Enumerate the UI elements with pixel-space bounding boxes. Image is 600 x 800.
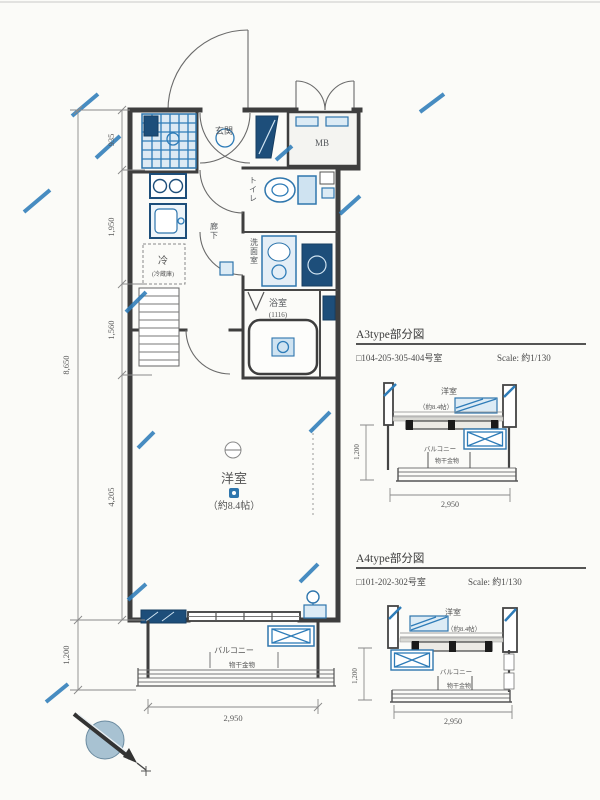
a3-drawing: 洋室 （約8.4帖） バルコニー 物干金物 [353, 383, 518, 509]
north-arrow-compass-icon [74, 714, 151, 776]
mb-vent-icon [326, 117, 348, 126]
a4-dim-depth: 1,200 [351, 668, 359, 684]
a3-title: A3type部分図 [356, 327, 424, 341]
washroom-label: 洗面室 [250, 237, 259, 265]
entrance-area: 玄関 [200, 113, 278, 163]
detail-a3: A3type部分図 □104-205-305-404号室 Scale: 約1/1… [353, 327, 586, 509]
toilet-label: トイレ [249, 176, 258, 203]
a3-balcony-label: バルコニー [424, 445, 456, 453]
a4-dim-width: 2,950 [444, 717, 462, 726]
bathtub-icon [249, 320, 317, 374]
main-room-size: （約8.4帖） [208, 499, 261, 512]
mb-label: MB [315, 138, 329, 148]
dim-seg3: 1,560 [106, 320, 116, 339]
dim-seg1: 935 [106, 134, 116, 147]
floorplan-page: MB 玄関 [0, 0, 600, 800]
mb-vent-icon [296, 117, 318, 126]
refrigerator-space: 冷 (冷蔵庫) [143, 244, 185, 284]
a3-railing-icon [396, 452, 518, 481]
bottom-window-icon [188, 612, 300, 621]
outdoor-faucet-icon [304, 591, 326, 618]
balcony: バルコニー 物干金物 [136, 622, 336, 686]
a3-room-label: 洋室 [441, 386, 457, 396]
bathroom-label: 浴室 [269, 297, 287, 308]
mb-double-door-icon [296, 81, 354, 110]
a4-scale: Scale: 約1/130 [468, 576, 522, 587]
wall-break-marks [24, 94, 444, 702]
storage-shelf-icon [139, 288, 179, 366]
a3-units: □104-205-305-404号室 [356, 352, 442, 363]
a3-scale: Scale: 約1/130 [497, 352, 551, 363]
a4-units: □101-202-302号室 [356, 576, 426, 587]
a4-ac-unit-box-icon [391, 650, 433, 670]
bathroom: 浴室 (1116) [248, 292, 335, 374]
a4-balcony-label: バルコニー [440, 668, 472, 676]
entrance-door-swing-icon [168, 30, 248, 110]
balcony-label: バルコニー [214, 646, 254, 655]
washroom: 洗面室 [250, 236, 333, 286]
ac-unit-box-icon [268, 626, 314, 646]
toilet-tank-icon [298, 176, 316, 204]
balcony-railing-icon [136, 652, 336, 686]
dim-seg4: 4,205 [106, 487, 116, 506]
a3-ac-unit-box-icon [464, 429, 506, 449]
a3-dim-width: 2,950 [441, 500, 459, 509]
dim-total: 8,650 [61, 355, 71, 374]
stove-icon [150, 174, 186, 198]
floor-hatch-icon [220, 262, 233, 275]
dim-seg2: 1,950 [106, 217, 116, 236]
fridge-note: (冷蔵庫) [152, 270, 174, 278]
pipe-space-icon [322, 188, 334, 198]
hallway-label: 廊下 [210, 221, 219, 240]
meter-box: MB [288, 112, 358, 166]
pipe-space-icon [320, 172, 334, 184]
detail-a4: A4type部分図 □101-202-302号室 Scale: 約1/130 洋… [351, 551, 586, 726]
main-room-label: 洋室 [221, 471, 247, 486]
dim-width: 2,950 [223, 713, 242, 723]
main-floor-plan: MB 玄関 [24, 30, 444, 776]
a3-dim-depth: 1,200 [353, 444, 361, 460]
a4-room-size: （約8.4帖） [447, 624, 481, 633]
washer-space-icon [302, 244, 332, 286]
toilet-bowl-icon [265, 178, 295, 202]
a3-balcony-note: 物干金物 [435, 457, 459, 465]
kitchen-unit-icon [142, 114, 196, 168]
folding-door-icon [248, 292, 264, 310]
toilet-room: トイレ [249, 172, 335, 204]
fridge-label: 冷 [158, 254, 168, 267]
a3-room-size: （約8.4帖） [419, 402, 453, 411]
room-door-swing-icon [186, 330, 230, 374]
ceiling-light-icon [225, 442, 241, 458]
kitchen-sink-icon [150, 204, 186, 238]
dim-balcony-depth: 1,200 [61, 645, 71, 664]
a4-title: A4type部分図 [356, 551, 424, 565]
water-heater-icon [323, 296, 335, 320]
a4-balcony-note: 物干金物 [447, 682, 471, 690]
entrance-label: 玄関 [215, 125, 233, 136]
balcony-note: 物干金物 [229, 660, 256, 669]
bathroom-size: (1116) [269, 311, 288, 319]
floorplan-canvas: MB 玄関 [0, 0, 600, 800]
a4-drawing: 洋室 （約8.4帖） バルコニー 物干金物 [351, 606, 517, 726]
hallway: 廊下 [200, 170, 243, 275]
